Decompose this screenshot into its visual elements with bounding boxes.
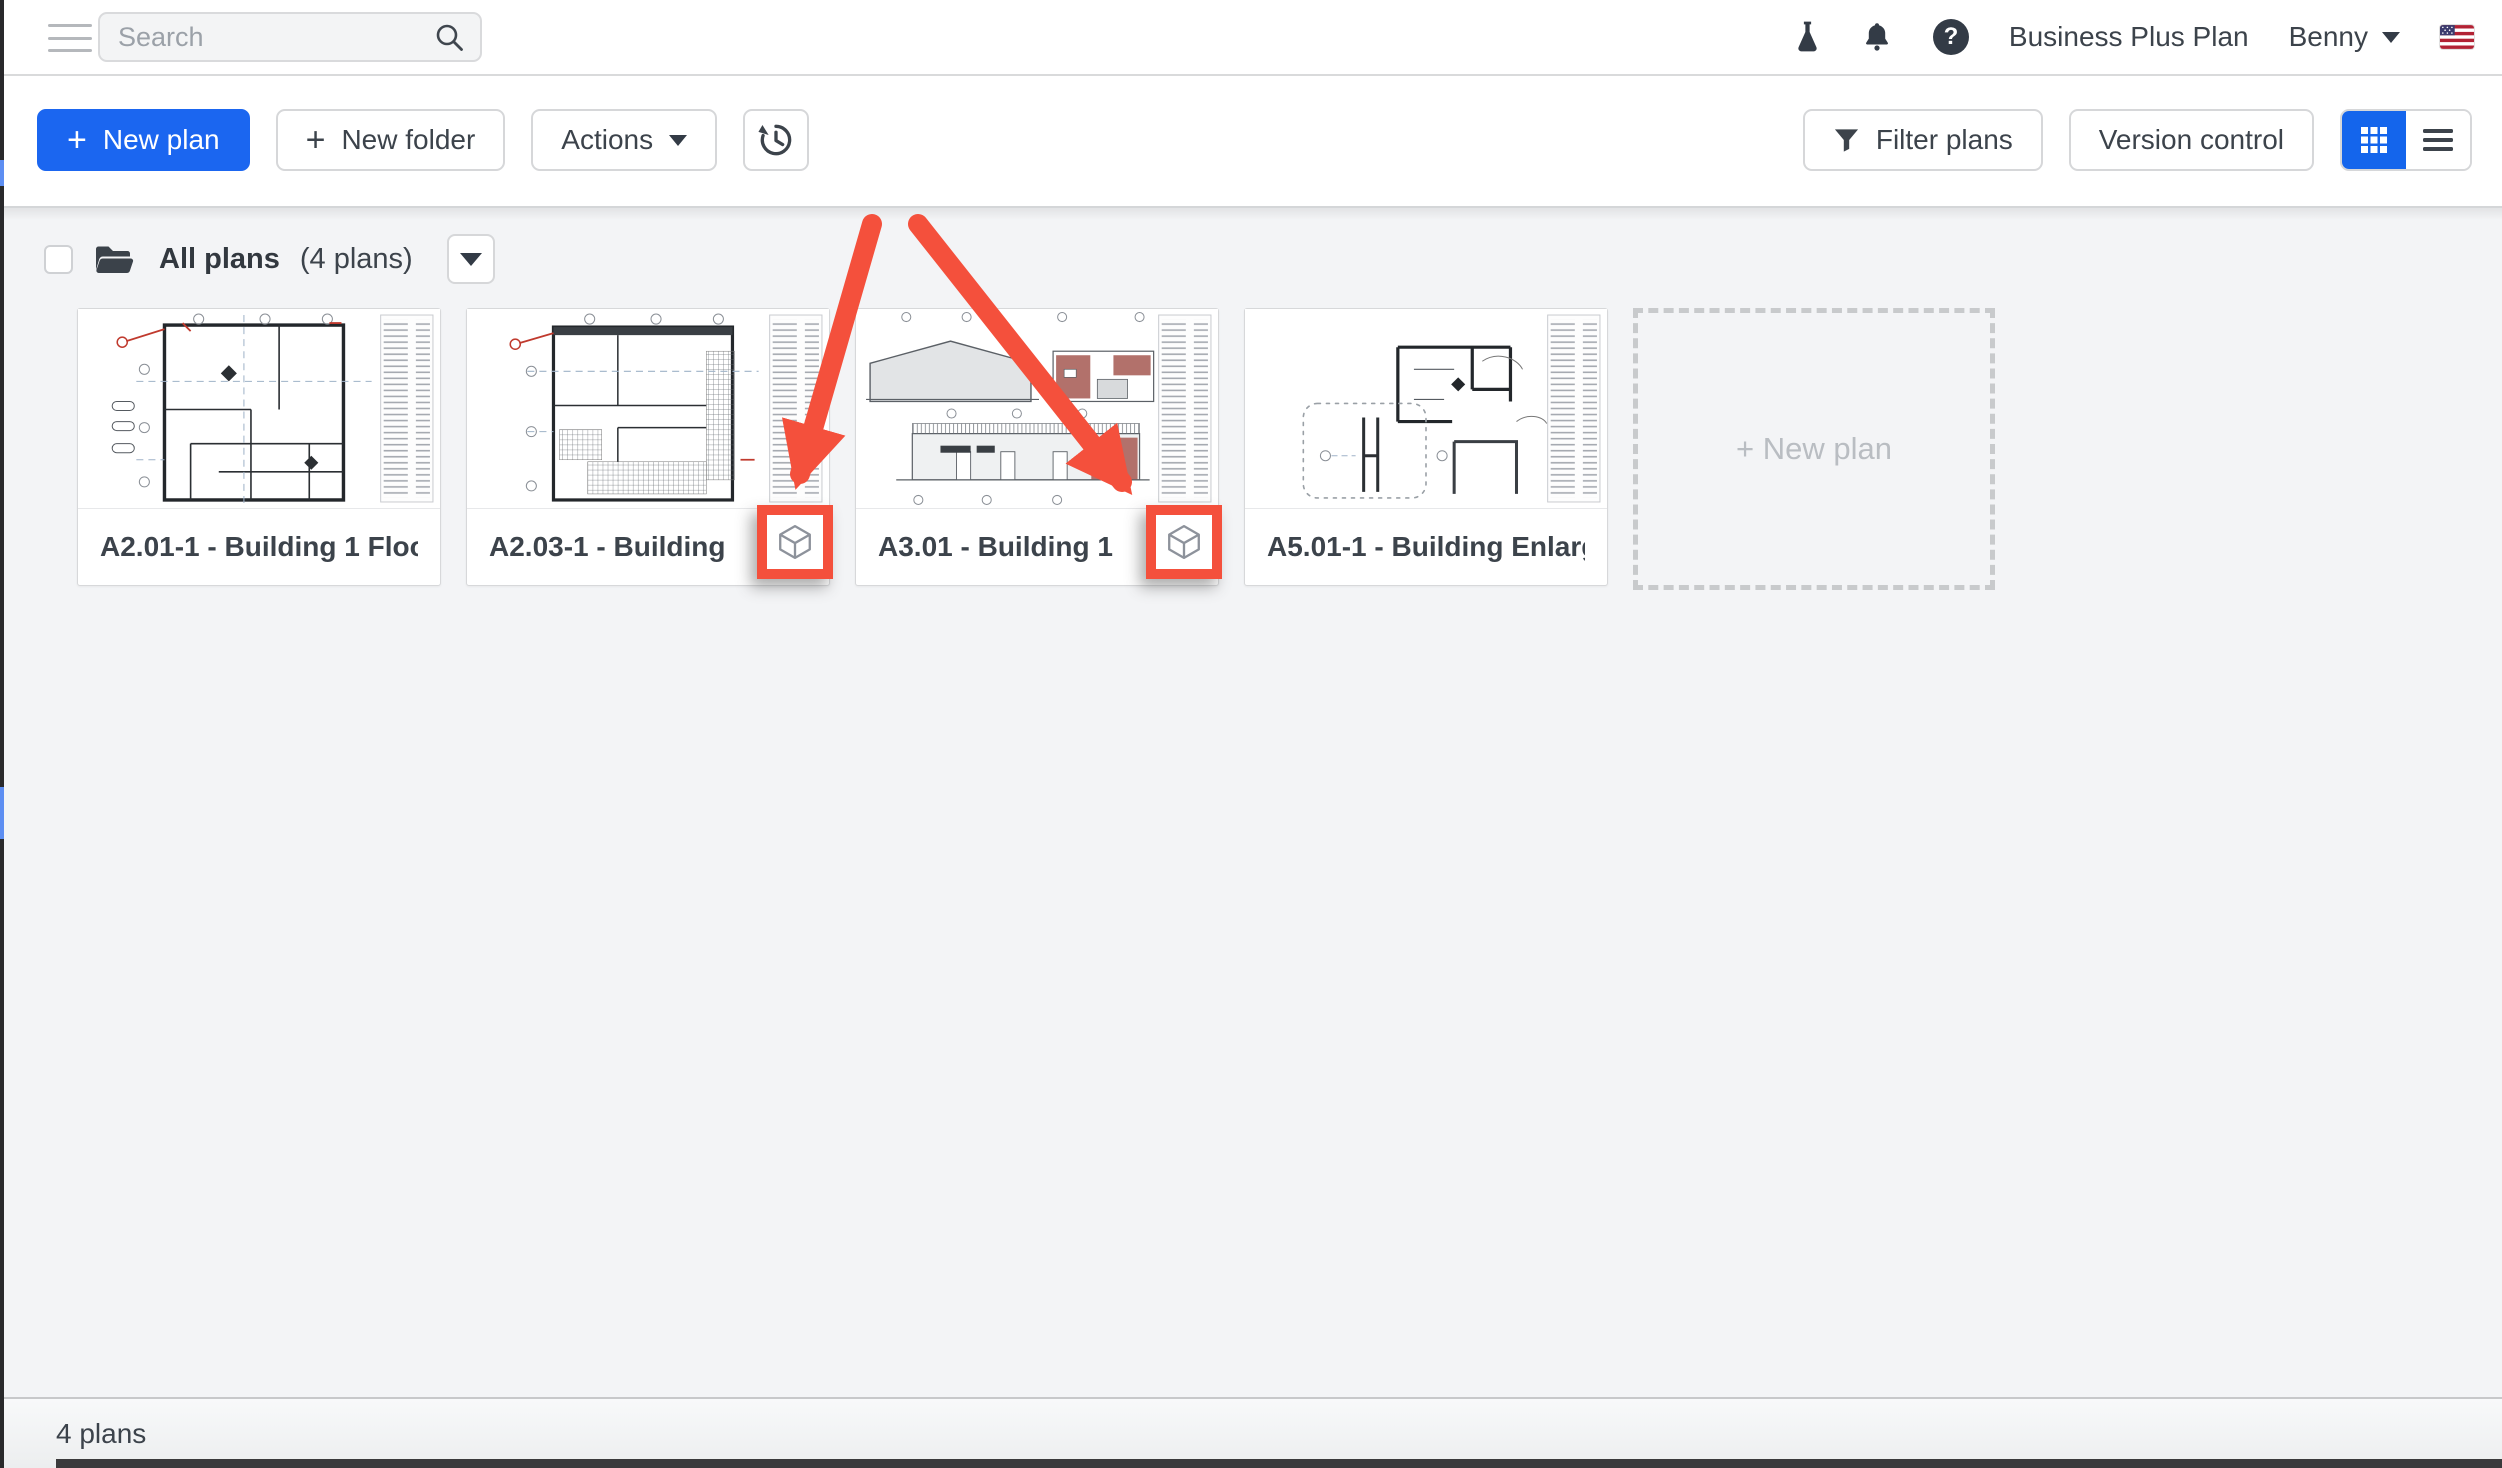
3d-cube-icon[interactable]	[1165, 523, 1203, 561]
plans-count-label: 4 plans	[56, 1418, 146, 1450]
edge-blue-segment	[0, 787, 4, 839]
folder-dropdown-button[interactable]	[447, 234, 495, 284]
user-menu[interactable]: Benny	[2289, 21, 2400, 53]
annotation-highlight-box	[757, 505, 833, 579]
toolbar-left-group: + New plan + New folder Actions	[37, 109, 809, 171]
plans-content: All plans (4 plans)	[4, 208, 2502, 1397]
plan-card[interactable]: A2.01-1 - Building 1 Floor ...	[77, 308, 441, 586]
list-view-icon	[2423, 128, 2453, 152]
plan-card[interactable]: A2.03-1 - Building 1 C...	[466, 308, 830, 586]
folder-row[interactable]: All plans (4 plans)	[44, 234, 495, 284]
search-icon[interactable]	[434, 22, 464, 52]
hamburger-menu-icon[interactable]	[48, 24, 92, 52]
user-name: Benny	[2289, 21, 2368, 53]
plan-card[interactable]: A5.01-1 - Building Enlarge...	[1244, 308, 1608, 586]
new-plan-placeholder-card[interactable]: + New plan	[1633, 308, 1995, 590]
account-plan-label[interactable]: Business Plus Plan	[2009, 21, 2249, 53]
window-left-edge	[0, 0, 4, 1468]
plan-title: A5.01-1 - Building Enlarge...	[1267, 531, 1585, 563]
plans-toolbar: + New plan + New folder Actions Filter p…	[4, 76, 2502, 208]
filter-plans-label: Filter plans	[1876, 124, 2013, 156]
plus-icon: +	[306, 123, 326, 157]
filter-funnel-icon	[1833, 127, 1860, 153]
plan-title: A3.01 - Building 1 Elev...	[878, 531, 1118, 563]
plans-page: ? Business Plus Plan Benny + New plan + …	[0, 0, 2502, 1468]
plan-label-row: A2.01-1 - Building 1 Floor ...	[78, 509, 440, 585]
plan-title: A2.03-1 - Building 1 C...	[489, 531, 729, 563]
plus-icon: +	[67, 123, 87, 157]
window-bottom-edge	[56, 1459, 2502, 1468]
chevron-down-icon	[460, 253, 482, 266]
folder-count: (4 plans)	[300, 243, 413, 276]
plan-thumbnail	[1245, 309, 1607, 509]
plan-title: A2.01-1 - Building 1 Floor ...	[100, 531, 418, 563]
plan-thumbnail	[856, 309, 1218, 509]
new-plan-label: New plan	[103, 124, 220, 156]
3d-cube-icon[interactable]	[776, 523, 814, 561]
new-folder-button[interactable]: + New folder	[276, 109, 506, 171]
filter-plans-button[interactable]: Filter plans	[1803, 109, 2043, 171]
version-control-button[interactable]: Version control	[2069, 109, 2314, 171]
search-box[interactable]	[98, 12, 482, 62]
edge-blue-segment	[0, 160, 4, 186]
top-bar-right: ? Business Plus Plan Benny	[1794, 0, 2474, 74]
beta-flask-icon[interactable]	[1794, 20, 1821, 54]
plan-card[interactable]: A3.01 - Building 1 Elev...	[855, 308, 1219, 586]
plan-cards: A2.01-1 - Building 1 Floor ...	[77, 308, 1995, 590]
annotation-highlight-box	[1146, 505, 1222, 579]
notifications-bell-icon[interactable]	[1861, 21, 1893, 53]
help-icon[interactable]: ?	[1933, 19, 1969, 55]
view-toggle	[2340, 109, 2472, 171]
chevron-down-icon	[669, 135, 687, 146]
folder-name: All plans	[159, 243, 280, 276]
plan-thumbnail	[78, 309, 440, 509]
plan-label-row: A5.01-1 - Building Enlarge...	[1245, 509, 1607, 585]
new-plan-placeholder-label: + New plan	[1736, 431, 1892, 467]
plan-thumbnail	[467, 309, 829, 509]
open-folder-icon	[93, 242, 135, 276]
chevron-down-icon	[2382, 32, 2400, 43]
toolbar-right-group: Filter plans Version control	[1803, 109, 2472, 171]
history-clock-icon	[757, 121, 795, 159]
new-plan-button[interactable]: + New plan	[37, 109, 250, 171]
search-input[interactable]	[116, 21, 434, 54]
actions-label: Actions	[561, 124, 653, 156]
grid-view-icon	[2360, 126, 2388, 154]
new-folder-label: New folder	[341, 124, 475, 156]
select-all-checkbox[interactable]	[44, 245, 73, 274]
grid-view-button[interactable]	[2342, 111, 2406, 169]
version-control-label: Version control	[2099, 124, 2284, 156]
footer-bar: 4 plans	[4, 1397, 2502, 1468]
list-view-button[interactable]	[2406, 111, 2470, 169]
top-bar: ? Business Plus Plan Benny	[4, 0, 2502, 76]
language-flag-icon[interactable]	[2440, 25, 2474, 49]
actions-button[interactable]: Actions	[531, 109, 717, 171]
version-history-button[interactable]	[743, 109, 809, 171]
